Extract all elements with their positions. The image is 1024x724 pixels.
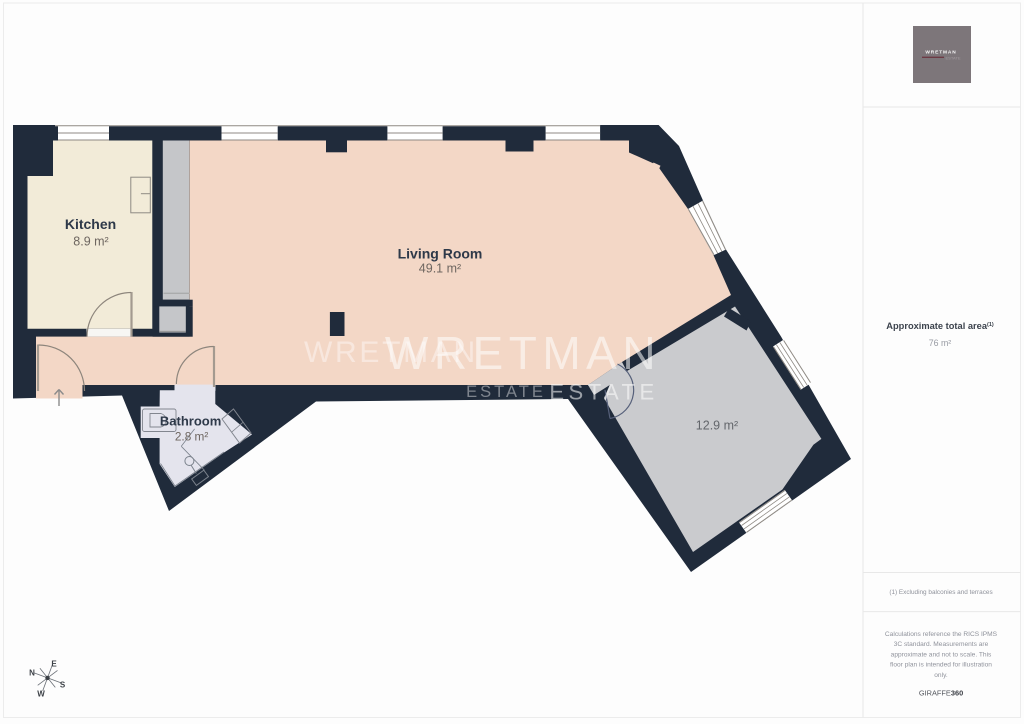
svg-text:76 m²: 76 m² [929, 338, 952, 348]
svg-text:approximate and not to scale.: approximate and not to scale. This [891, 651, 992, 658]
svg-text:only.: only. [934, 672, 948, 679]
svg-text:3C standard. Measurements are: 3C standard. Measurements are [894, 641, 989, 648]
svg-text:ESTATE: ESTATE [466, 383, 546, 401]
svg-text:Kitchen: Kitchen [65, 216, 116, 232]
svg-text:E: E [51, 660, 57, 669]
svg-text:W: W [37, 690, 45, 699]
svg-text:8.9 m²: 8.9 m² [73, 235, 108, 249]
svg-text:N: N [29, 669, 35, 678]
svg-text:12.9 m²: 12.9 m² [696, 419, 738, 433]
svg-text:49.1 m²: 49.1 m² [419, 262, 461, 276]
svg-text:Approximate total area(1): Approximate total area(1) [886, 321, 994, 331]
svg-text:ESTATE: ESTATE [549, 380, 658, 405]
svg-text:floor plan is intended for ill: floor plan is intended for illustration [890, 662, 992, 669]
svg-text:Living Room: Living Room [398, 246, 483, 262]
svg-text:GIRAFFE360: GIRAFFE360 [919, 689, 963, 698]
svg-text:S: S [60, 681, 66, 690]
svg-text:(1) Excluding balconies and te: (1) Excluding balconies and terraces [889, 589, 992, 596]
svg-text:2.8 m²: 2.8 m² [175, 430, 209, 444]
svg-text:ESTATE: ESTATE [946, 55, 961, 60]
svg-text:Calculations reference the RIC: Calculations reference the RICS IPMS [885, 631, 998, 638]
svg-text:Bathroom: Bathroom [160, 414, 221, 429]
svg-text:WRETMAN: WRETMAN [385, 327, 661, 379]
